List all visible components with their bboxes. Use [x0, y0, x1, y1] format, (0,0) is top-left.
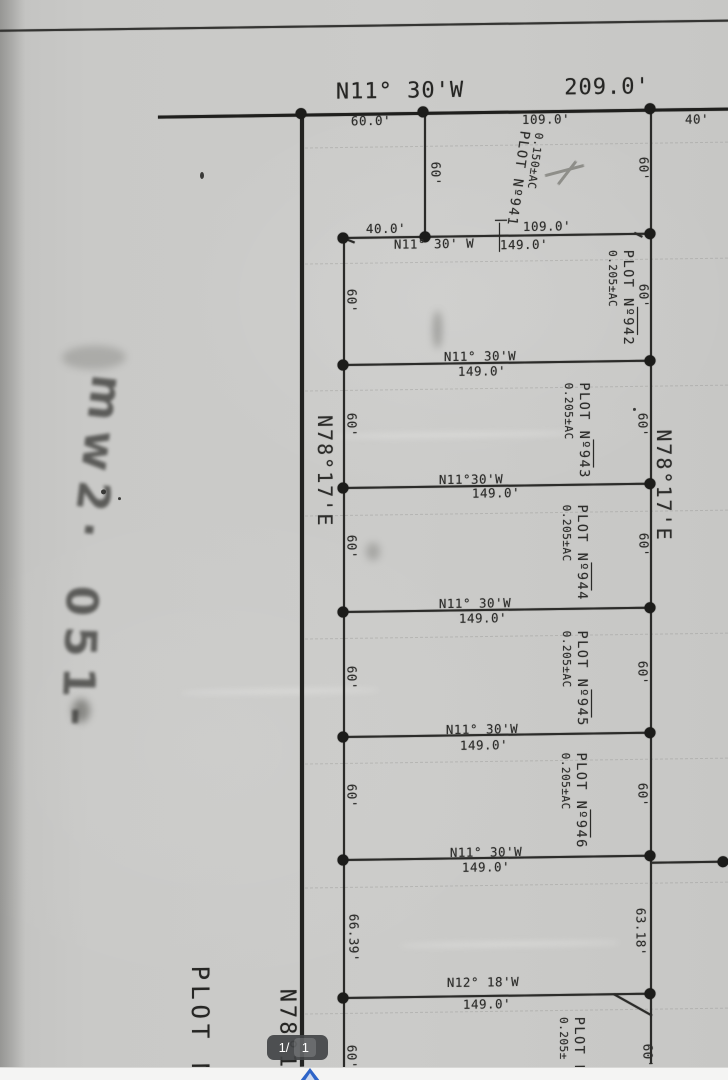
paper-crease	[305, 1008, 728, 1015]
handwriting-annotation: mw2·	[61, 372, 133, 550]
corner-dot	[338, 606, 349, 617]
survey-drawing: N11° 30'W 209.0' 60.0' 109.0' 40' 40.0' …	[0, 0, 728, 1068]
distance-label: 149.0'	[459, 610, 507, 626]
plot-label-945: PLOT Nº945 0.205±AC	[559, 630, 589, 727]
east-plot-line	[650, 108, 652, 1064]
corner-dot	[645, 355, 656, 366]
plot-label-942: PLOT Nº942 0.205±AC	[605, 250, 635, 347]
north-boundary-line	[158, 108, 728, 119]
paper-speck	[633, 408, 636, 411]
side-dim-label: 63.18'	[634, 908, 649, 956]
segment-dim-label: 109.0'	[522, 111, 570, 127]
side-dim-label: 60'	[345, 289, 360, 313]
handwriting-annotation: 051-	[51, 585, 107, 736]
paper-wrinkle	[330, 431, 580, 439]
corner-dot	[645, 727, 656, 738]
page-margin-strip	[0, 1067, 728, 1080]
bearing-label: N12° 18'W	[447, 974, 519, 990]
paper-wrinkle	[400, 940, 620, 948]
bearing-label: N11° 30'W	[444, 348, 516, 364]
corner-dot	[645, 602, 656, 613]
side-dim-label: 60'	[636, 661, 651, 685]
corner-dot	[645, 228, 656, 239]
plot-division-line-extension	[651, 861, 727, 864]
plot-name: PLOT N	[571, 1017, 586, 1068]
west-road-bearing-label: N78°17'E	[313, 415, 337, 528]
paper-crease	[305, 385, 728, 392]
north-distance-label: 209.0'	[564, 74, 649, 100]
plot946-underline	[590, 810, 591, 838]
corner-dot	[338, 731, 349, 742]
corner-dot	[338, 359, 349, 370]
side-dim-label: 60'	[636, 413, 651, 437]
paper-speck	[118, 497, 121, 500]
plot-label-partial: PLOT N 0.205±	[556, 1017, 586, 1068]
side-dim-label: 66.39'	[347, 914, 362, 962]
plot-name: PLOT Nº943	[576, 382, 591, 478]
side-dim-label: 60'	[345, 784, 360, 808]
plot941-west-line	[424, 112, 426, 237]
plot-label-943: PLOT Nº943 0.205±AC	[561, 382, 591, 479]
bearing-label: N11° 30' W	[394, 236, 474, 252]
corner-dot	[645, 988, 656, 999]
paper-crease	[305, 758, 728, 765]
plot-label-944: PLOT Nº944 0.205±AC	[559, 504, 589, 601]
plot-area: 0.205±AC	[559, 631, 574, 727]
bottom-plot-label: PLOT N	[186, 965, 214, 1068]
ink-smudge	[366, 542, 380, 560]
side-dim-label: 60'	[345, 666, 360, 690]
corner-dot	[645, 103, 656, 114]
paper-speck	[200, 172, 204, 179]
distance-label: 149.0'	[458, 363, 506, 379]
paper-crease	[305, 633, 728, 640]
current-page-label[interactable]: 1/	[279, 1040, 290, 1055]
corner-dot	[338, 854, 349, 865]
plot-area: 0.205±AC	[558, 753, 573, 849]
plot-area: 0.205±AC	[605, 250, 620, 346]
side-dim-label: 60'	[345, 413, 360, 437]
plot942-underline	[637, 307, 638, 335]
paper-crease	[305, 258, 728, 265]
distance-label: 149.0'	[463, 996, 511, 1012]
total-pages-label: 1	[294, 1038, 316, 1057]
corner-dot	[296, 108, 307, 119]
side-dim-label: 60'	[641, 1044, 656, 1068]
corner-dot	[418, 106, 429, 117]
bearing-label: N11° 30'W	[446, 721, 518, 737]
bearing-label: N11° 30'W	[439, 595, 511, 611]
plot945-underline	[591, 690, 592, 718]
distance-label: 149.0'	[460, 737, 508, 753]
west-road-boundary-line	[300, 112, 304, 1067]
side-dim-label: 60'	[429, 162, 444, 186]
side-dim-label: 60'	[636, 783, 651, 807]
north-bearing-label: N11° 30'W	[336, 78, 464, 105]
segment-dim-label: 60.0'	[351, 113, 391, 129]
bearing-label: N11° 30'W	[450, 844, 522, 860]
segment-dim-label: 40.0'	[366, 221, 406, 237]
sheet-edge-line	[0, 20, 728, 33]
plot-area: 0.205±AC	[559, 505, 574, 601]
plot944-underline	[591, 563, 592, 591]
corner-dot	[718, 856, 728, 867]
corner-dot	[645, 850, 656, 861]
side-dim-label: 60'	[637, 533, 652, 557]
plot-name: PLOT Nº944	[574, 504, 589, 600]
corner-dot	[338, 232, 349, 243]
distance-label: 149.0'	[462, 859, 510, 875]
east-side-bearing-label: N78°17'E	[652, 429, 676, 542]
plot-name: PLOT Nº945	[574, 630, 589, 726]
corner-dot	[338, 992, 349, 1003]
paper-crease	[305, 882, 728, 889]
plot-area: 0.205±AC	[561, 383, 576, 479]
scanned-survey-sheet: N11° 30'W 209.0' 60.0' 109.0' 40' 40.0' …	[0, 0, 728, 1068]
side-dim-label: 60'	[345, 535, 360, 559]
plot-area: 0.205±	[556, 1017, 571, 1068]
distance-label: 149.0'	[472, 485, 520, 501]
side-dim-label: 60'	[637, 157, 652, 181]
page-indicator-badge[interactable]: 1/ 1	[267, 1035, 328, 1060]
plot943-underline	[593, 439, 594, 467]
ink-smudge	[433, 311, 442, 349]
plot-name: PLOT Nº946	[573, 752, 588, 848]
scroll-up-arrow-icon[interactable]	[299, 1068, 323, 1080]
arrow-inner-shape	[304, 1073, 316, 1080]
corner-dot	[338, 482, 349, 493]
plot-name: PLOT Nº942	[620, 250, 635, 346]
pdf-viewer-page: N11° 30'W 209.0' 60.0' 109.0' 40' 40.0' …	[0, 0, 728, 1080]
plot-label-946: PLOT Nº946 0.205±AC	[558, 752, 588, 849]
distance-label: 149.0'	[500, 237, 548, 253]
side-dim-label: 60'	[345, 1045, 360, 1068]
ink-smudge	[62, 345, 126, 370]
side-dim-label: 60'	[637, 284, 652, 308]
segment-dim-label: 40'	[685, 111, 709, 126]
